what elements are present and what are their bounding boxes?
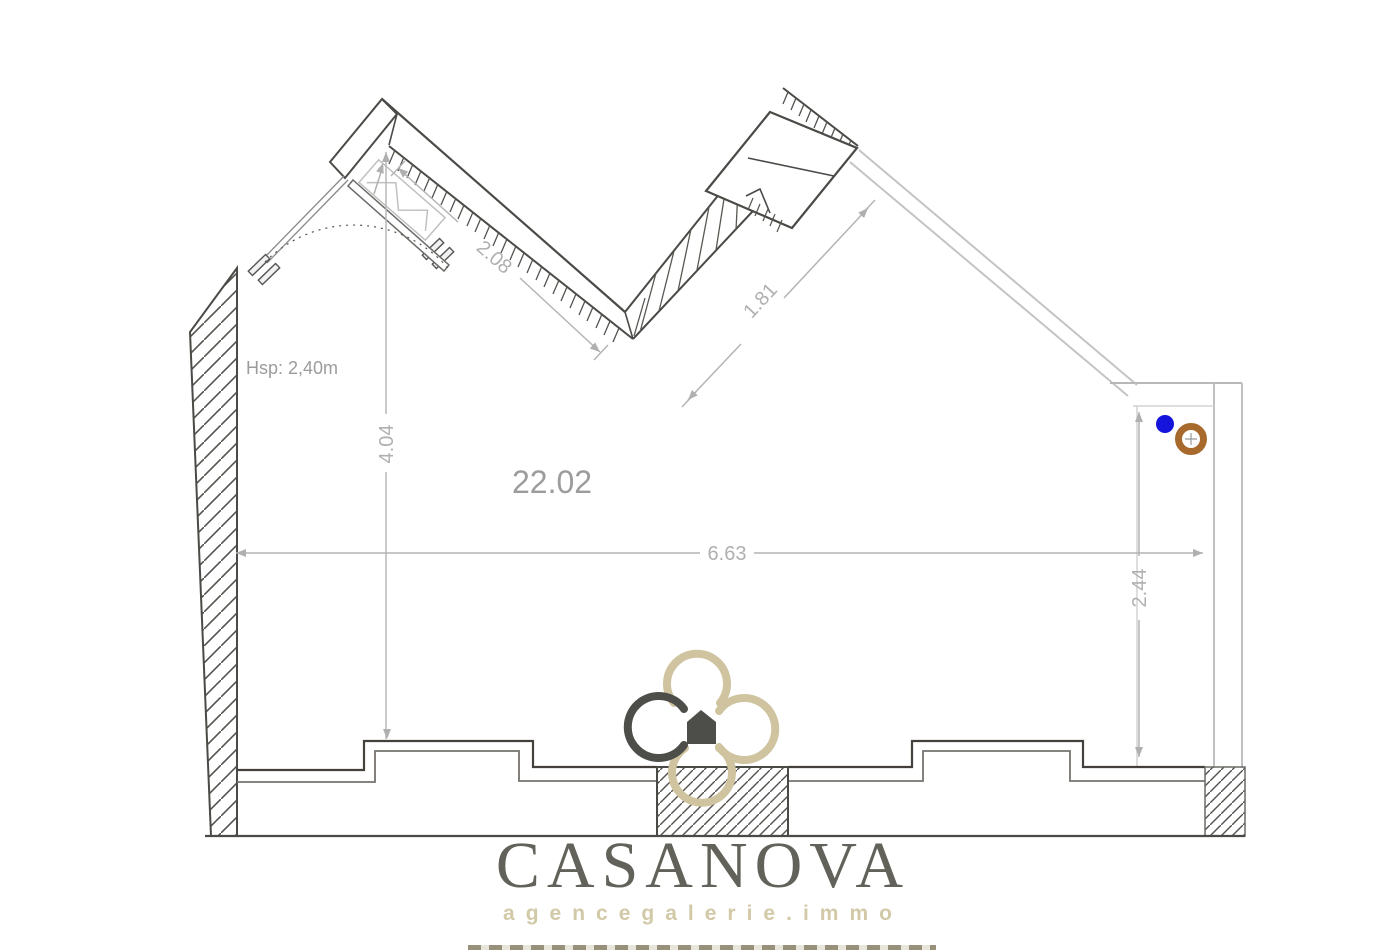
dim-label-right-wall-height: 2.44: [1129, 569, 1151, 608]
dimension-right-wall-height: 2.44: [1129, 412, 1151, 757]
dimension-top-right-wall: 1.81: [682, 200, 875, 407]
brand-name: CASANOVA: [350, 828, 1056, 904]
brand-tagline: agencegalerie.immo: [350, 902, 1056, 926]
right-pier: [1205, 767, 1245, 836]
floor-plan-drawing: 2.08 1.81 4.04 6.63 2.44 22.02 Hsp: 2,40…: [0, 0, 1400, 950]
entry-door: [248, 160, 453, 285]
dimension-room-width: 6.63: [236, 543, 1203, 565]
center-pier: [657, 767, 788, 836]
upper-left-diagonal-wall: [382, 99, 633, 342]
area-label: 22.02: [512, 464, 592, 500]
chimney-block: [706, 88, 858, 232]
footer-cropped-text-strip: [468, 945, 936, 950]
socket-ring-marker: [1179, 427, 1204, 452]
blue-dot-marker: [1156, 415, 1174, 433]
ceiling-height-label: Hsp: 2,40m: [246, 358, 338, 378]
dim-label-top-right-wall: 1.81: [739, 279, 782, 322]
left-wall: [190, 268, 237, 836]
dimension-top-left-wall: 2.08: [391, 161, 608, 360]
dim-label-room-width: 6.63: [708, 543, 747, 565]
dim-label-top-left-wall: 2.08: [472, 236, 516, 278]
dimension-interior-height: 4.04: [376, 152, 398, 739]
floor-plan-page: 2.08 1.81 4.04 6.63 2.44 22.02 Hsp: 2,40…: [0, 0, 1400, 950]
dim-label-interior-height: 4.04: [376, 425, 398, 464]
roof-slope-lines: [850, 150, 1137, 396]
